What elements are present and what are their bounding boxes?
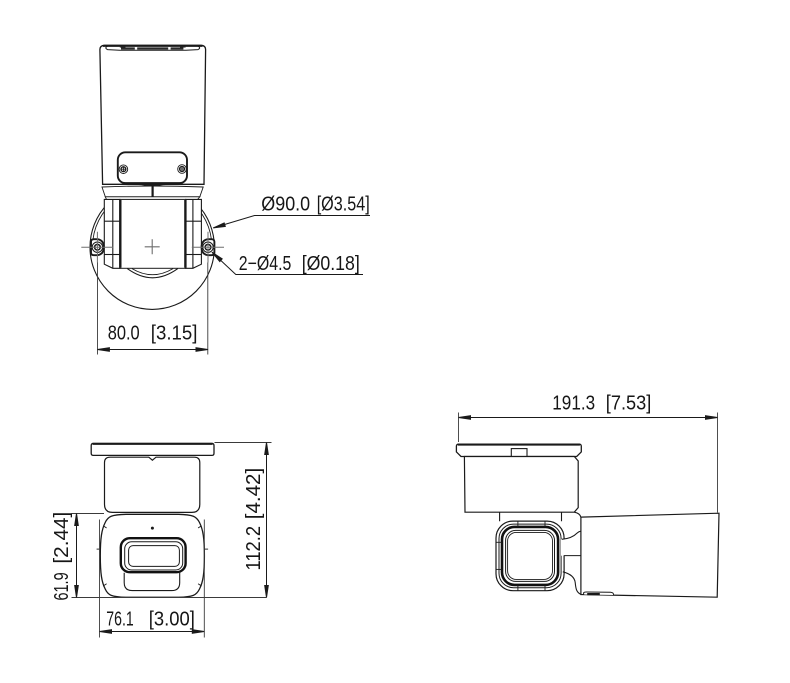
- svg-text:76.1: 76.1: [106, 609, 133, 631]
- svg-text:Ø90.0: Ø90.0: [261, 193, 310, 215]
- svg-text:[3.15]: [3.15]: [151, 323, 198, 345]
- svg-text:80.0: 80.0: [108, 323, 140, 345]
- svg-text:[4.42]: [4.42]: [243, 468, 265, 519]
- svg-text:2−Ø4.5: 2−Ø4.5: [239, 253, 292, 275]
- svg-text:112.2: 112.2: [243, 526, 265, 571]
- svg-text:191.3: 191.3: [552, 393, 595, 415]
- svg-text:[Ø3.54]: [Ø3.54]: [317, 193, 370, 215]
- svg-text:61.9: 61.9: [51, 572, 73, 600]
- svg-text:[2.44]: [2.44]: [51, 512, 73, 564]
- svg-text:[3.00]: [3.00]: [149, 609, 195, 631]
- svg-text:[7.53]: [7.53]: [606, 393, 652, 415]
- svg-text:[Ø0.18]: [Ø0.18]: [302, 253, 360, 275]
